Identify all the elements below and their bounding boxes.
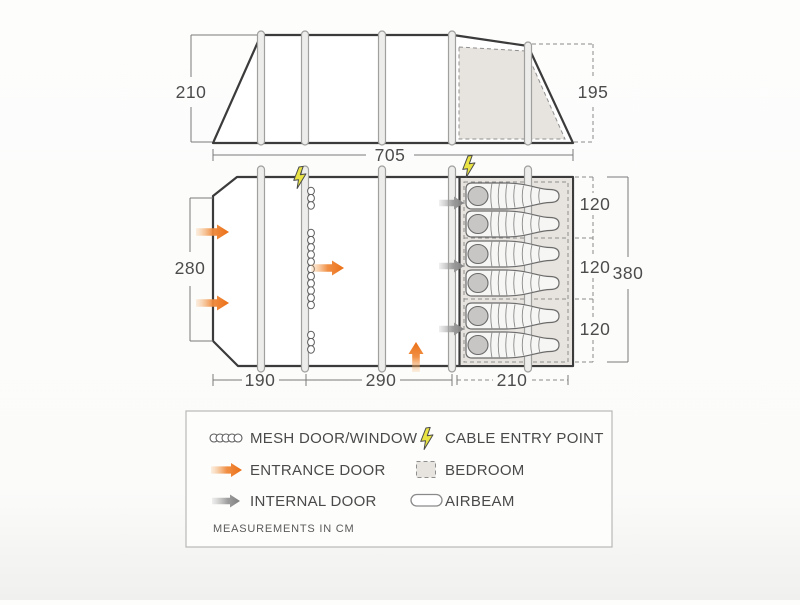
pillow [468,215,488,234]
compartment-2-label: 120 [580,257,611,277]
floor-plan: 280 190 290 210 12 [175,155,644,390]
dim-bedroom-compartments: 120 120 120 [575,177,610,362]
front-section-label: 190 [245,370,276,390]
legend: MESH DOOR/WINDOW ENTRANCE DOOR INTERNAL … [186,411,612,547]
front-width-label: 280 [175,258,206,278]
compartment-3-label: 120 [580,319,611,339]
airbeam [379,31,386,145]
pillow [468,245,488,264]
airbeam [258,31,265,145]
legend-label-entrance: ENTRANCE DOOR [250,462,386,479]
cable-bolt [461,155,477,178]
living-section-label: 290 [366,370,397,390]
side-elevation: 210 195 705 [176,31,609,165]
compartment-1-label: 120 [580,194,611,214]
airbeam [525,42,532,145]
bedroom-total-label: 380 [613,263,644,283]
peak-height-label: 210 [176,82,207,102]
bedroom-section-label: 210 [497,370,528,390]
total-length-label: 705 [375,145,406,165]
legend-label-internal: INTERNAL DOOR [250,493,377,510]
pillow [468,274,488,293]
airbeam [258,166,265,372]
legend-label-mesh: MESH DOOR/WINDOW [250,430,418,447]
dim-total-length: 705 [213,145,573,165]
legend-label-airbeam: AIRBEAM [445,493,515,510]
pillow [468,307,488,326]
pillow [468,187,488,206]
dim-bottom-sections: 190 290 210 [213,370,568,390]
bedroom-swatch-icon [417,462,436,478]
airbeam [379,166,386,372]
legend-measurements-note: MEASUREMENTS IN CM [213,523,355,535]
legend-label-bedroom: BEDROOM [445,462,525,479]
rear-height-label: 195 [578,82,609,102]
pillow [468,336,488,355]
airbeam [449,31,456,145]
mesh-window [308,187,315,209]
airbeam-capsule-icon [411,495,442,507]
dim-front-width: 280 [175,198,213,341]
mesh-chain-icon [210,434,242,442]
legend-label-cable: CABLE ENTRY POINT [445,430,604,447]
dim-bedroom-total: 380 [607,177,643,362]
mesh-window [308,331,315,353]
airbeam [302,31,309,145]
tent-dimensions-diagram: 210 195 705 [0,0,800,600]
diagram-canvas: 210 195 705 [0,0,800,600]
